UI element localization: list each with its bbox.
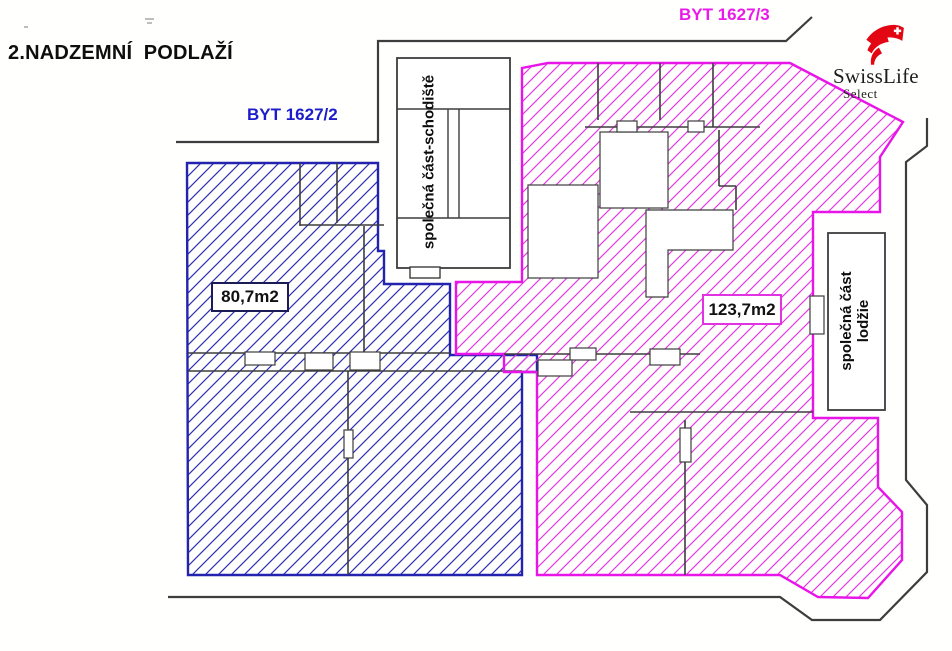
staircase-landing-tab	[410, 267, 440, 278]
floor-plan-page: 2.NADZEMNÍ PODLAŽÍ BYT 1627/2 BYT 1627/3…	[0, 0, 952, 651]
apartment-1627-2-area-badge: 80,7m2	[211, 282, 289, 312]
apartment-1627-2-label: BYT 1627/2	[247, 105, 338, 125]
staircase-label: společná část-schodiště	[420, 75, 437, 249]
swisslife-flag-icon	[857, 24, 907, 66]
loggia-label-line2: lodžie	[855, 271, 872, 370]
loggia-label-line1: společná část	[838, 271, 855, 370]
apartment-1627-2-area-value: 80,7m2	[221, 287, 279, 307]
apartment-1627-3-label: BYT 1627/3	[679, 5, 770, 25]
loggia-label: společná část lodžie	[838, 271, 873, 370]
swisslife-sub-text: Select	[843, 86, 878, 102]
staircase-box	[397, 58, 510, 278]
print-artifacts	[24, 19, 154, 27]
apartment-1627-3-area-value: 123,7m2	[708, 300, 775, 320]
floor-plan-drawing	[0, 0, 952, 651]
page-title: 2.NADZEMNÍ PODLAŽÍ	[8, 42, 233, 65]
apartment-1627-3-area-badge: 123,7m2	[702, 294, 782, 325]
swisslife-logo: SwissLife Select	[826, 20, 944, 104]
